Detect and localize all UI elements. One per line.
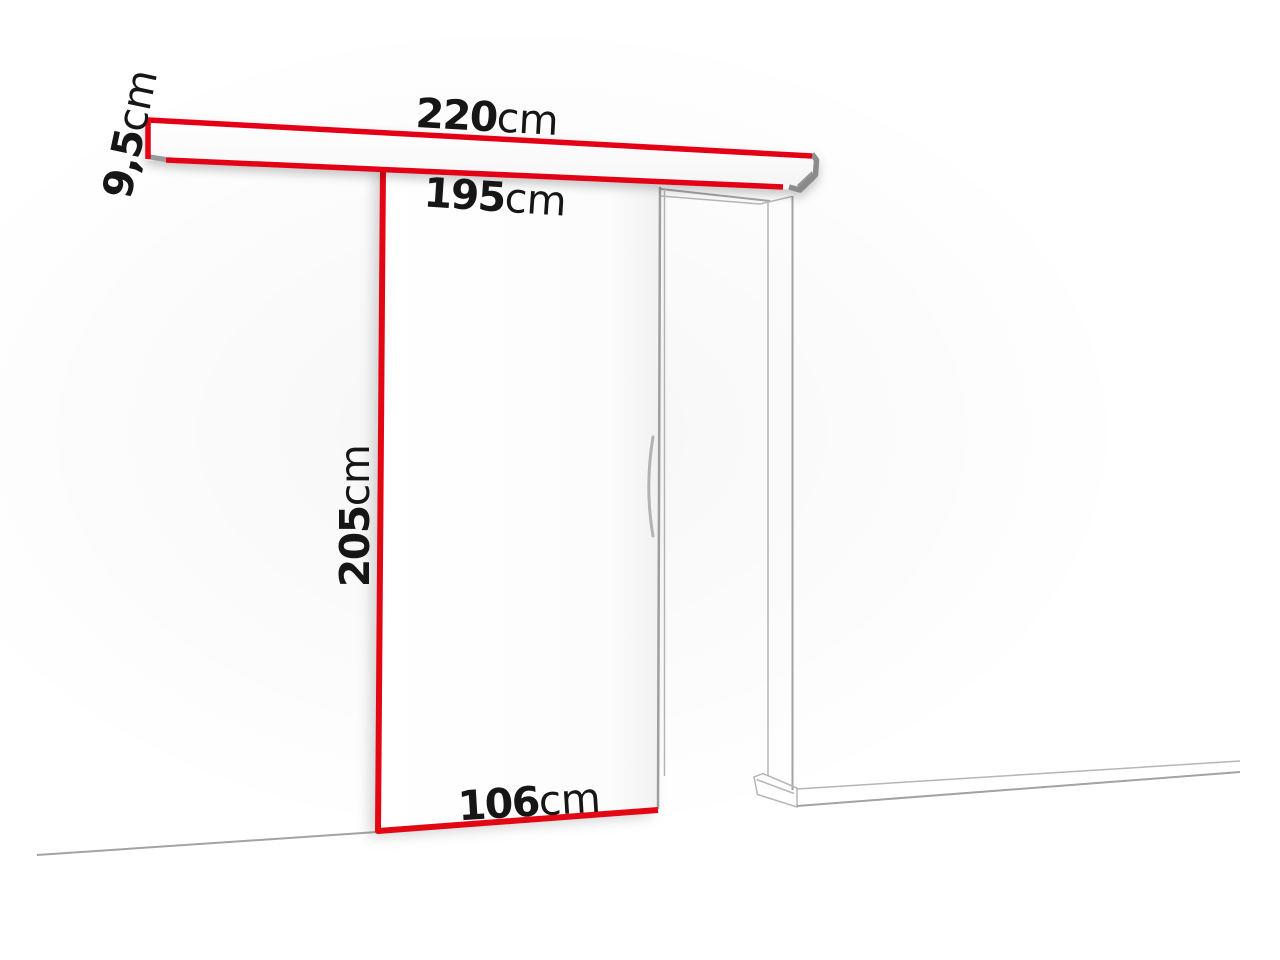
baseboard-bottom-line bbox=[797, 772, 1240, 806]
dimension-opening-width-value: 195 bbox=[422, 168, 506, 221]
dimension-rail-length-unit: cm bbox=[495, 94, 559, 145]
floor-line-left bbox=[37, 832, 377, 855]
dimension-door-height-value: 205 bbox=[331, 506, 379, 587]
dimension-rail-height-value: 9,5 bbox=[93, 126, 154, 203]
dimension-door-height-unit: cm bbox=[331, 445, 379, 506]
door-panel bbox=[378, 166, 661, 831]
dimension-door-width-value: 106 bbox=[456, 777, 540, 830]
frame-plinth-block bbox=[754, 774, 797, 808]
dimension-door-height: 205cm bbox=[331, 445, 379, 588]
dimension-door-width: 106cm bbox=[456, 774, 601, 831]
door-panel-face bbox=[378, 166, 661, 831]
frame-plinth-bevel bbox=[757, 780, 795, 794]
baseboard-top-line bbox=[797, 761, 1240, 789]
frame-header-outer-line bbox=[661, 189, 770, 201]
dimension-opening-width: 195cm bbox=[422, 168, 567, 225]
dimension-rail-length-value: 220 bbox=[414, 89, 498, 141]
dimension-door-width-unit: cm bbox=[537, 774, 601, 826]
dimension-rail-length: 220cm bbox=[414, 89, 559, 145]
frame-header-inner-line bbox=[661, 196, 760, 204]
door-frame bbox=[661, 189, 1240, 807]
sliding-door-dimension-diagram: 220cm 195cm 9,5cm 205cm 106cm bbox=[0, 0, 1280, 960]
dimension-opening-width-unit: cm bbox=[503, 174, 568, 226]
